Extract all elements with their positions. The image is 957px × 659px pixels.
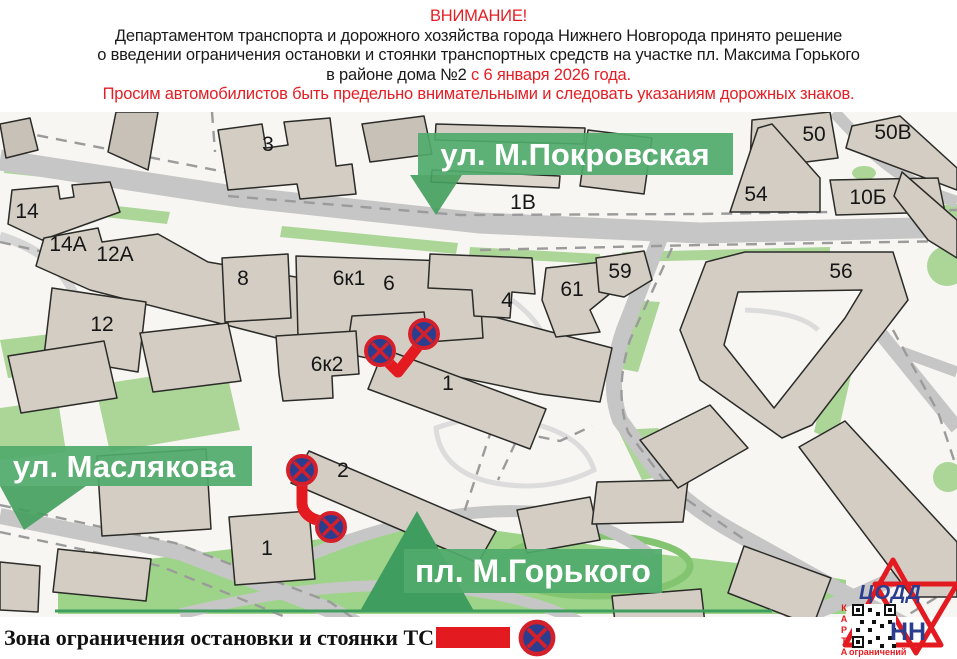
building-label: 8 [237, 267, 249, 290]
parking-restriction-announcement: ул. М.Покровская ул. Маслякова пл. М.Гор… [0, 0, 957, 659]
building-label: 14 [15, 200, 39, 223]
codd-title: ЦОДД [859, 582, 922, 605]
codd-logo: ЦОДД НН КАРТА ограничений [828, 548, 957, 659]
building-label: 6к2 [311, 353, 344, 376]
no-stopping-sign-icon [364, 335, 396, 367]
street-name: ул. М.Покровская [440, 137, 709, 172]
building-label: 12 [90, 313, 113, 336]
header-line: о введении ограничения остановки и стоян… [97, 46, 860, 66]
header-line: в районе дома №2 с 6 января 2026 года. [326, 66, 631, 86]
restriction-zone-sample [436, 627, 510, 648]
building-label: 50В [874, 121, 911, 144]
building-label: 1В [510, 191, 536, 214]
building-label: 54 [744, 183, 768, 206]
building-label: 50 [802, 123, 825, 146]
building-label: 10Б [849, 186, 886, 209]
no-stopping-sign-icon [286, 454, 318, 486]
street-name: ул. Маслякова [13, 449, 236, 484]
building-label: 14А [49, 233, 86, 256]
legend-label: Зона ограничения остановки и стоянки ТС … [4, 625, 447, 650]
building-label: 1 [261, 537, 273, 560]
codd-city: НН [890, 618, 926, 647]
building-label: 6к1 [333, 267, 366, 290]
street-name: пл. М.Горького [415, 553, 651, 589]
no-stopping-sign-icon [315, 511, 347, 543]
legend: Зона ограничения остановки и стоянки ТС … [0, 617, 957, 659]
qr-bottom-caption: ограничений [849, 647, 906, 657]
building-label: 56 [829, 260, 852, 283]
building-label: 59 [608, 260, 631, 283]
header: ВНИМАНИЕ! Департаментом транспорта и дор… [0, 0, 957, 112]
header-warning: Просим автомобилистов быть предельно вни… [103, 85, 855, 105]
header-attention: ВНИМАНИЕ! [430, 7, 527, 27]
building-label: 12А [96, 243, 133, 266]
header-date: с 6 января 2026 года. [467, 66, 631, 84]
building-label: 1 [442, 372, 454, 395]
header-line: Департаментом транспорта и дорожного хоз… [115, 27, 842, 47]
qr-side-caption: КАРТА [839, 603, 849, 658]
building-label: 3 [262, 133, 274, 156]
street-label-gorkogo: пл. М.Горького [404, 549, 662, 593]
no-stopping-sign-icon [408, 318, 440, 350]
building-label: 61 [560, 278, 583, 301]
building-label: 2 [337, 459, 349, 482]
building-label: 4 [501, 289, 513, 312]
building-8 [222, 254, 291, 322]
no-stopping-sign-icon [519, 620, 556, 657]
building-label: 6 [383, 272, 395, 295]
